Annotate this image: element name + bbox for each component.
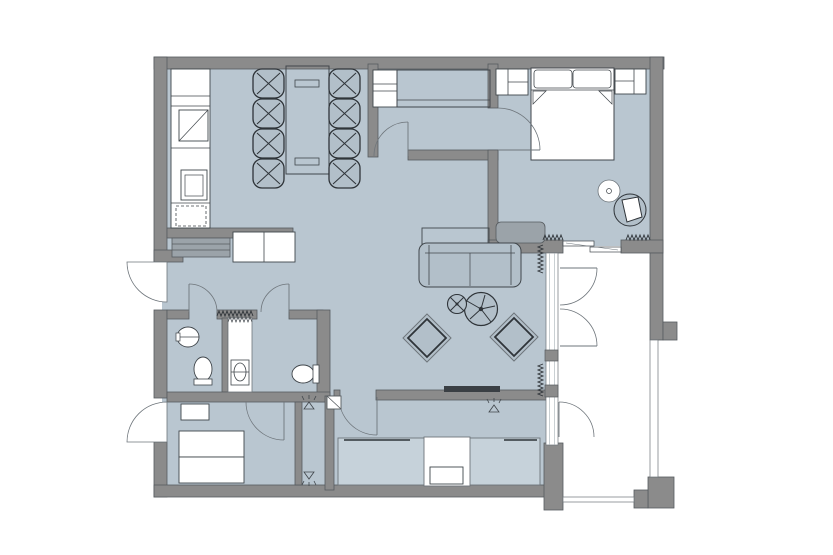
wall-bath-divider	[222, 318, 228, 392]
dining-chair	[253, 129, 284, 158]
coffee-table-large-hub	[479, 307, 483, 311]
balcony-railing-bottom	[563, 497, 634, 502]
toilet-1-tank	[194, 379, 212, 385]
dryer	[179, 457, 244, 483]
kitchen-counter	[171, 69, 210, 228]
wall-left-mid	[154, 310, 167, 398]
laundry-shelf	[181, 404, 209, 420]
floor-plan-page	[0, 0, 833, 555]
wall-top	[154, 57, 664, 69]
french-door-2-arc	[560, 309, 597, 346]
window-wall-glazing	[546, 253, 558, 445]
wall-bedroom-right	[650, 57, 663, 253]
toilet-1-bowl	[194, 357, 212, 381]
wall-balcony-pier-b	[634, 490, 648, 508]
toilet-2-bowl	[292, 365, 314, 383]
wall-window-pier	[544, 443, 563, 510]
wall-bath-south	[167, 392, 330, 402]
bedroom-bench	[496, 222, 545, 243]
window-mullion-b	[545, 385, 558, 397]
dining-chair	[329, 159, 360, 188]
wall-closet-south	[408, 150, 498, 160]
window-mullion-a	[545, 350, 558, 361]
wall-left-upper	[154, 57, 167, 262]
wall-bath-top-a	[167, 310, 189, 319]
wall-bedroom-south-b	[621, 240, 663, 253]
wall-bottom	[154, 485, 558, 497]
dining-chair	[253, 99, 284, 128]
pantry-cabinet	[172, 238, 230, 257]
wall-laundry-east	[295, 402, 302, 485]
pillow	[534, 70, 572, 88]
pillow	[573, 70, 611, 88]
balcony-railing-right	[650, 340, 658, 477]
floor-plan-svg	[0, 0, 833, 555]
bedroom-rug-dot	[607, 189, 612, 194]
entry-door-1	[127, 262, 167, 302]
dining-chair	[329, 129, 360, 158]
dining-chair	[329, 99, 360, 128]
wall-vestibule-east	[325, 396, 334, 490]
wall-balcony-bump	[663, 322, 677, 340]
wall-balcony-right	[650, 253, 663, 340]
toilet-2-tank	[313, 365, 319, 383]
balcony-door-arc	[559, 402, 594, 437]
dining-chair	[253, 159, 284, 188]
kitchen-sink-inner	[185, 175, 203, 196]
nightstand-right	[615, 69, 646, 94]
dining-chair	[253, 69, 284, 98]
dining-chair	[329, 69, 360, 98]
french-door-1-arc	[560, 268, 597, 305]
bathroom-sink-tap	[176, 333, 180, 341]
tv	[444, 386, 500, 392]
entry-door-2	[127, 402, 167, 442]
closet-cabinet	[373, 70, 397, 107]
coffee-table-small-hub	[456, 303, 459, 306]
washer	[179, 431, 244, 457]
wall-bath-east	[317, 310, 330, 402]
wall-balcony-pier-a	[648, 477, 674, 508]
study-chair	[430, 467, 463, 484]
